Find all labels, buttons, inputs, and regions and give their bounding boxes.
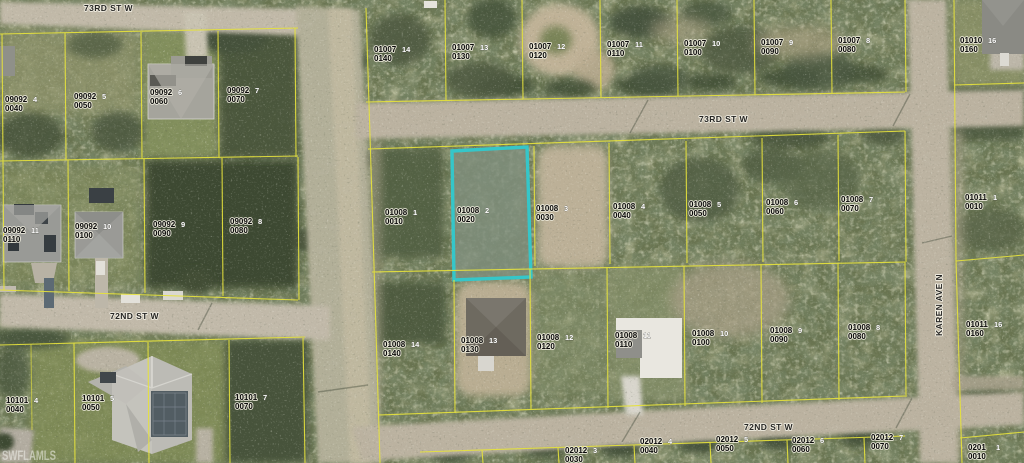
svg-text:01008: 01008 [615, 331, 638, 340]
svg-text:0140: 0140 [374, 54, 392, 63]
svg-text:01008: 01008 [385, 208, 408, 217]
svg-text:01008: 01008 [457, 206, 480, 215]
svg-text:0070: 0070 [227, 95, 245, 104]
svg-text:10: 10 [720, 329, 728, 338]
svg-text:73RD ST W: 73RD ST W [699, 114, 749, 124]
svg-text:02012: 02012 [871, 433, 894, 442]
svg-text:7: 7 [899, 433, 903, 442]
svg-text:0100: 0100 [684, 48, 702, 57]
svg-text:0090: 0090 [770, 335, 788, 344]
svg-text:6: 6 [820, 436, 824, 445]
svg-text:10: 10 [712, 39, 720, 48]
svg-text:0100: 0100 [75, 231, 93, 240]
svg-text:01008: 01008 [537, 333, 560, 342]
svg-text:0160: 0160 [966, 329, 984, 338]
svg-text:1: 1 [996, 443, 1000, 452]
svg-text:0050: 0050 [74, 101, 92, 110]
svg-text:01007: 01007 [529, 42, 552, 51]
svg-text:8: 8 [258, 217, 262, 226]
svg-text:0130: 0130 [452, 52, 470, 61]
svg-text:0110: 0110 [3, 235, 21, 244]
svg-text:0070: 0070 [871, 442, 889, 451]
svg-text:0040: 0040 [613, 211, 631, 220]
svg-text:11: 11 [635, 40, 643, 49]
svg-text:01008: 01008 [461, 336, 484, 345]
svg-text:01008: 01008 [383, 340, 406, 349]
svg-text:0040: 0040 [5, 104, 23, 113]
svg-text:01007: 01007 [374, 45, 397, 54]
svg-text:09092: 09092 [75, 222, 98, 231]
svg-text:11: 11 [31, 226, 39, 235]
svg-text:KAREN AVE N: KAREN AVE N [934, 274, 944, 336]
svg-text:13: 13 [480, 43, 488, 52]
svg-text:10101: 10101 [235, 393, 258, 402]
svg-text:0090: 0090 [153, 229, 171, 238]
svg-text:13: 13 [489, 336, 497, 345]
svg-text:3: 3 [593, 446, 597, 455]
svg-text:01011: 01011 [966, 320, 988, 329]
svg-text:14: 14 [411, 340, 420, 349]
svg-text:9: 9 [789, 38, 793, 47]
svg-text:0140: 0140 [383, 349, 401, 358]
svg-text:7: 7 [263, 393, 267, 402]
svg-text:1: 1 [413, 208, 417, 217]
svg-text:6: 6 [794, 198, 798, 207]
svg-text:12: 12 [565, 333, 573, 342]
svg-text:10101: 10101 [82, 394, 105, 403]
svg-text:0080: 0080 [838, 45, 856, 54]
svg-text:0060: 0060 [792, 445, 810, 454]
svg-text:SWFLAMLS: SWFLAMLS [2, 448, 56, 463]
svg-text:0070: 0070 [235, 402, 253, 411]
svg-text:10: 10 [103, 222, 111, 231]
svg-text:0050: 0050 [689, 209, 707, 218]
svg-text:09092: 09092 [5, 95, 28, 104]
svg-text:0030: 0030 [536, 213, 554, 222]
svg-text:09092: 09092 [230, 217, 253, 226]
svg-text:01008: 01008 [848, 323, 871, 332]
svg-text:16: 16 [988, 36, 996, 45]
svg-text:73RD ST W: 73RD ST W [84, 3, 134, 13]
svg-text:3: 3 [564, 204, 568, 213]
svg-text:5: 5 [717, 200, 721, 209]
svg-text:09092: 09092 [3, 226, 26, 235]
svg-text:01008: 01008 [841, 195, 864, 204]
svg-text:0201: 0201 [968, 443, 986, 452]
svg-text:0010: 0010 [968, 452, 986, 461]
svg-text:5: 5 [110, 394, 114, 403]
svg-text:8: 8 [876, 323, 880, 332]
svg-text:0080: 0080 [230, 226, 248, 235]
svg-text:0130: 0130 [461, 345, 479, 354]
svg-text:01007: 01007 [607, 40, 630, 49]
svg-text:0030: 0030 [565, 455, 583, 463]
svg-text:5: 5 [744, 435, 748, 444]
svg-text:01008: 01008 [692, 329, 715, 338]
svg-text:01007: 01007 [452, 43, 475, 52]
svg-text:09092: 09092 [150, 88, 173, 97]
svg-text:7: 7 [255, 86, 259, 95]
svg-text:01008: 01008 [536, 204, 559, 213]
svg-text:01008: 01008 [770, 326, 793, 335]
svg-text:9: 9 [181, 220, 185, 229]
svg-text:01007: 01007 [761, 38, 784, 47]
svg-text:0080: 0080 [848, 332, 866, 341]
svg-text:9: 9 [798, 326, 802, 335]
svg-text:16: 16 [994, 320, 1002, 329]
svg-text:02012: 02012 [792, 436, 815, 445]
svg-text:01007: 01007 [838, 36, 861, 45]
svg-text:01011: 01011 [965, 193, 987, 202]
svg-text:72ND ST W: 72ND ST W [110, 311, 160, 321]
svg-text:01008: 01008 [766, 198, 789, 207]
svg-text:01010: 01010 [960, 36, 983, 45]
svg-text:0040: 0040 [6, 405, 24, 414]
svg-text:09092: 09092 [153, 220, 176, 229]
svg-text:12: 12 [557, 42, 565, 51]
svg-text:0070: 0070 [841, 204, 859, 213]
svg-text:0100: 0100 [692, 338, 710, 347]
svg-text:0090: 0090 [761, 47, 779, 56]
svg-text:02012: 02012 [640, 437, 663, 446]
svg-text:14: 14 [402, 45, 411, 54]
svg-text:5: 5 [102, 92, 106, 101]
svg-text:0010: 0010 [965, 202, 983, 211]
svg-text:10101: 10101 [6, 396, 29, 405]
svg-text:0060: 0060 [766, 207, 784, 216]
svg-text:0120: 0120 [537, 342, 555, 351]
svg-text:72ND ST W: 72ND ST W [744, 422, 794, 432]
svg-text:1: 1 [993, 193, 997, 202]
svg-text:11: 11 [643, 331, 651, 340]
svg-text:0050: 0050 [82, 403, 100, 412]
svg-text:0010: 0010 [385, 217, 403, 226]
svg-text:0060: 0060 [150, 97, 168, 106]
svg-text:0020: 0020 [457, 215, 475, 224]
svg-text:0050: 0050 [716, 444, 734, 453]
svg-text:0040: 0040 [640, 446, 658, 455]
svg-text:09092: 09092 [227, 86, 250, 95]
svg-text:0110: 0110 [615, 340, 633, 349]
svg-text:8: 8 [866, 36, 870, 45]
svg-text:02012: 02012 [565, 446, 588, 455]
svg-text:7: 7 [869, 195, 873, 204]
svg-text:0110: 0110 [607, 49, 625, 58]
svg-text:01007: 01007 [684, 39, 707, 48]
svg-text:01008: 01008 [689, 200, 712, 209]
svg-text:0120: 0120 [529, 51, 547, 60]
svg-text:02012: 02012 [716, 435, 739, 444]
svg-text:09092: 09092 [74, 92, 97, 101]
svg-text:6: 6 [178, 88, 182, 97]
svg-text:0160: 0160 [960, 45, 978, 54]
svg-text:01008: 01008 [613, 202, 636, 211]
svg-text:2: 2 [485, 206, 489, 215]
